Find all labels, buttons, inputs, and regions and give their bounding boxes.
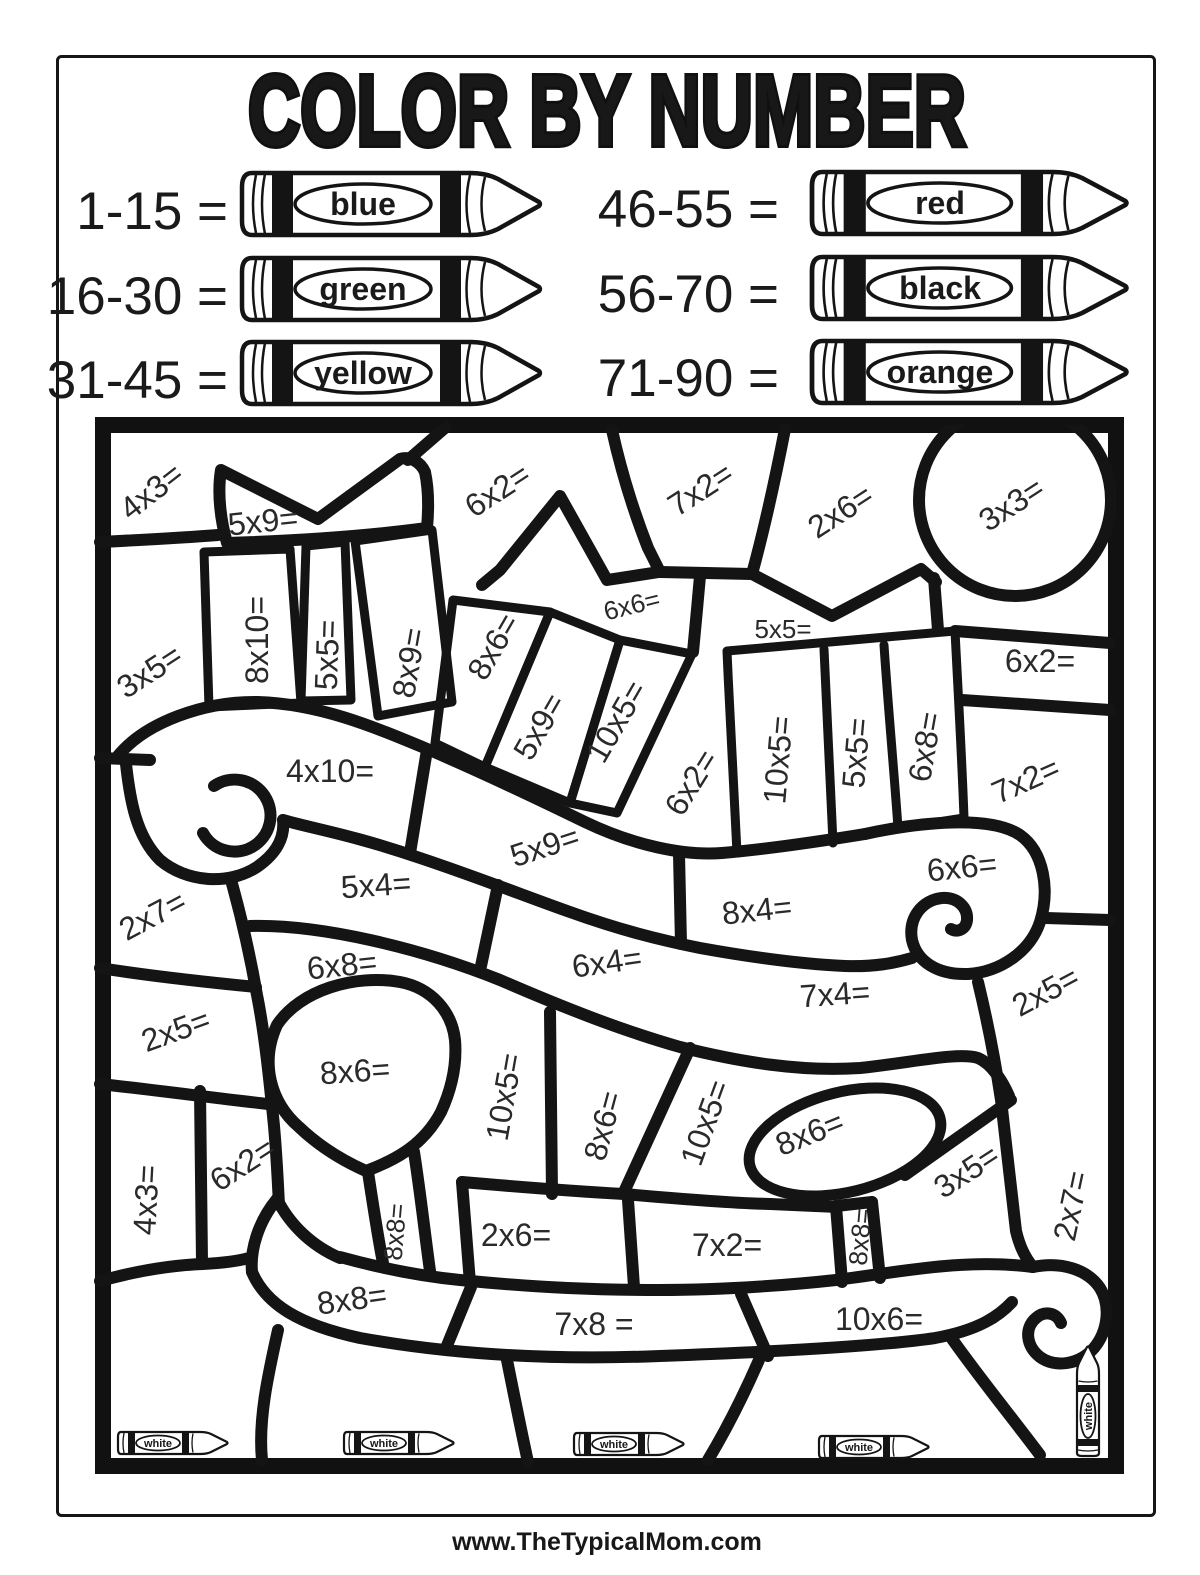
svg-text:4x10=: 4x10= [286, 753, 374, 789]
svg-text:6x8=: 6x8= [305, 943, 379, 986]
svg-text:4x3=: 4x3= [126, 1164, 166, 1236]
svg-text:8x8=: 8x8= [378, 1202, 413, 1262]
svg-text:7x2=: 7x2= [692, 1227, 762, 1263]
svg-text:orange: orange [887, 354, 994, 390]
svg-text:6x2=: 6x2= [1005, 643, 1075, 679]
svg-text:16-30 =: 16-30 = [47, 267, 228, 326]
svg-text:8x4=: 8x4= [720, 888, 794, 931]
svg-text:46-55 =: 46-55 = [598, 180, 779, 239]
svg-text:56-70 =: 56-70 = [598, 265, 779, 324]
svg-text:blue: blue [330, 186, 396, 222]
svg-text:5x5=: 5x5= [308, 619, 346, 690]
svg-text:71-90 =: 71-90 = [598, 349, 779, 408]
svg-text:5x5=: 5x5= [754, 614, 811, 644]
svg-text:6x6=: 6x6= [925, 845, 999, 888]
svg-text:5x9=: 5x9= [226, 499, 300, 542]
svg-text:5x4=: 5x4= [340, 865, 413, 906]
svg-text:green: green [319, 271, 406, 307]
svg-text:8x6=: 8x6= [319, 1051, 392, 1092]
svg-text:7x4=: 7x4= [799, 974, 872, 1015]
svg-text:COLOR BY NUMBER: COLOR BY NUMBER [248, 55, 966, 167]
svg-text:31-45 =: 31-45 = [47, 351, 228, 410]
svg-text:5x5=: 5x5= [835, 716, 877, 789]
svg-text:yellow: yellow [314, 355, 412, 391]
svg-text:7x8 =: 7x8 = [554, 1306, 633, 1342]
svg-text:red: red [915, 185, 965, 221]
svg-text:10x6=: 10x6= [835, 1301, 923, 1337]
svg-text:8x8=: 8x8= [843, 1207, 878, 1267]
svg-text:www.TheTypicalMom.com: www.TheTypicalMom.com [451, 1528, 762, 1556]
svg-text:black: black [899, 270, 981, 306]
svg-text:10x5=: 10x5= [756, 714, 800, 805]
svg-text:1-15 =: 1-15 = [76, 182, 228, 241]
svg-text:2x6=: 2x6= [481, 1217, 551, 1253]
svg-text:8x10=: 8x10= [239, 596, 275, 684]
